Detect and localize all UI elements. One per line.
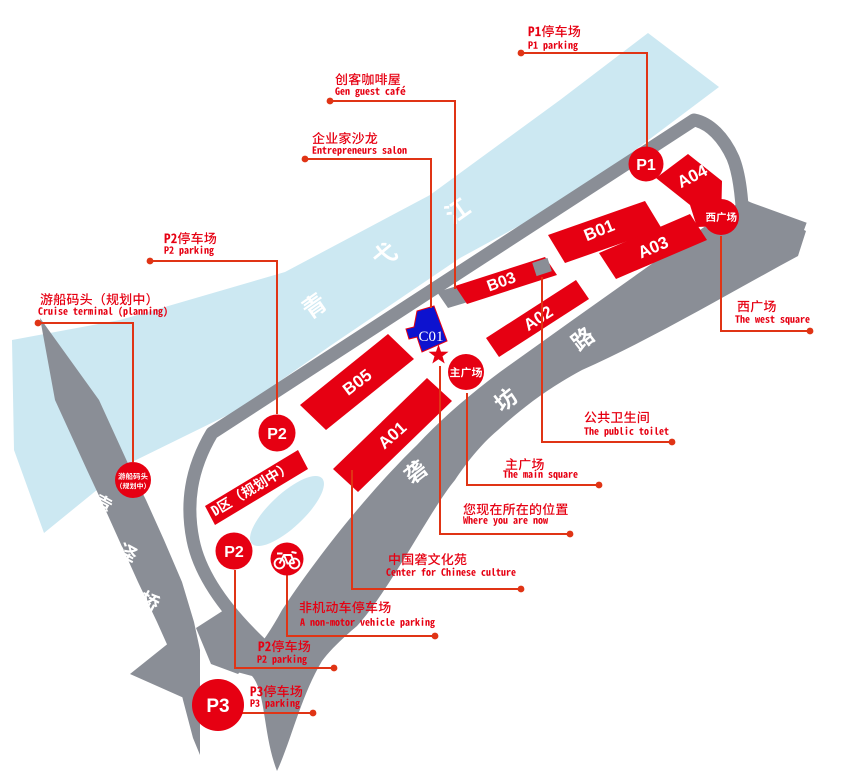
svg-text:C01: C01 [418, 329, 443, 345]
svg-text:P2: P2 [224, 544, 244, 561]
svg-text:P3: P3 [206, 696, 229, 717]
svg-text:P1: P1 [636, 157, 656, 174]
svg-text:P2: P2 [267, 426, 287, 443]
